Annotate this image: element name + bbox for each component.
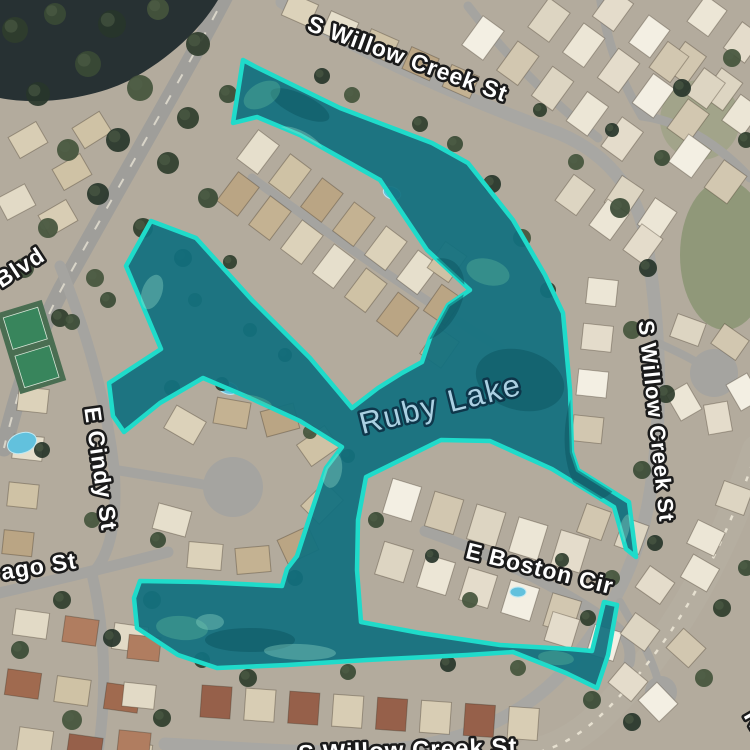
house: [54, 676, 91, 706]
house: [332, 694, 364, 728]
house: [2, 530, 34, 557]
house: [581, 323, 614, 352]
house: [16, 727, 53, 750]
house: [117, 730, 151, 750]
house: [463, 703, 495, 737]
house: [62, 616, 99, 646]
house: [235, 546, 271, 575]
house: [122, 682, 156, 709]
map-view[interactable]: S Willow Creek StBlvdE Cindy Stago StE B…: [0, 0, 750, 750]
house: [4, 669, 41, 699]
house: [571, 415, 604, 444]
house: [200, 685, 232, 719]
shallow-water-patch: [196, 614, 224, 630]
house: [704, 401, 733, 435]
swimming-pool: [510, 587, 526, 597]
house: [586, 278, 619, 307]
satellite-canvas[interactable]: S Willow Creek StBlvdE Cindy Stago StE B…: [0, 0, 750, 750]
house: [7, 482, 39, 509]
house: [419, 700, 451, 734]
house: [244, 688, 276, 722]
house: [375, 697, 407, 731]
house: [187, 542, 223, 571]
house: [576, 369, 609, 398]
house: [288, 691, 320, 725]
house: [12, 609, 49, 639]
house: [213, 397, 251, 429]
